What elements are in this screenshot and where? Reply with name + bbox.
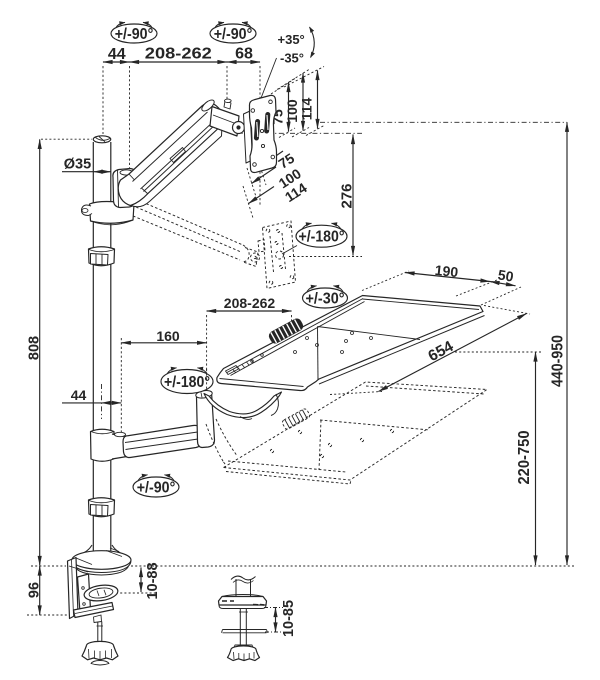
svg-text:+/-90°: +/-90° — [137, 480, 176, 497]
svg-text:+/-90°: +/-90° — [115, 26, 154, 43]
svg-text:160: 160 — [156, 328, 180, 344]
svg-text:440-950: 440-950 — [550, 335, 567, 387]
svg-text:114: 114 — [299, 97, 315, 120]
svg-text:208-262: 208-262 — [224, 295, 276, 311]
svg-text:+/-180°: +/-180° — [164, 374, 210, 391]
svg-text:50: 50 — [497, 266, 515, 284]
svg-text:+35°: +35° — [278, 32, 305, 47]
svg-text:68: 68 — [235, 46, 253, 63]
svg-text:10-85: 10-85 — [281, 600, 297, 637]
svg-text:96: 96 — [27, 582, 43, 598]
svg-text:220-750: 220-750 — [516, 430, 533, 484]
svg-text:44: 44 — [108, 46, 126, 63]
svg-text:654: 654 — [425, 338, 456, 365]
svg-text:Ø35: Ø35 — [64, 157, 91, 173]
svg-text:+/-30°: +/-30° — [306, 291, 345, 308]
svg-text:208-262: 208-262 — [145, 46, 212, 63]
svg-text:10-88: 10-88 — [145, 562, 161, 599]
svg-text:276: 276 — [339, 183, 356, 208]
svg-text:808: 808 — [27, 336, 43, 360]
svg-text:+/-90°: +/-90° — [214, 26, 253, 43]
svg-text:-35°: -35° — [280, 51, 304, 66]
svg-text:44: 44 — [71, 387, 87, 403]
svg-text:190: 190 — [434, 262, 459, 280]
svg-text:+/-180°: +/-180° — [299, 229, 345, 246]
